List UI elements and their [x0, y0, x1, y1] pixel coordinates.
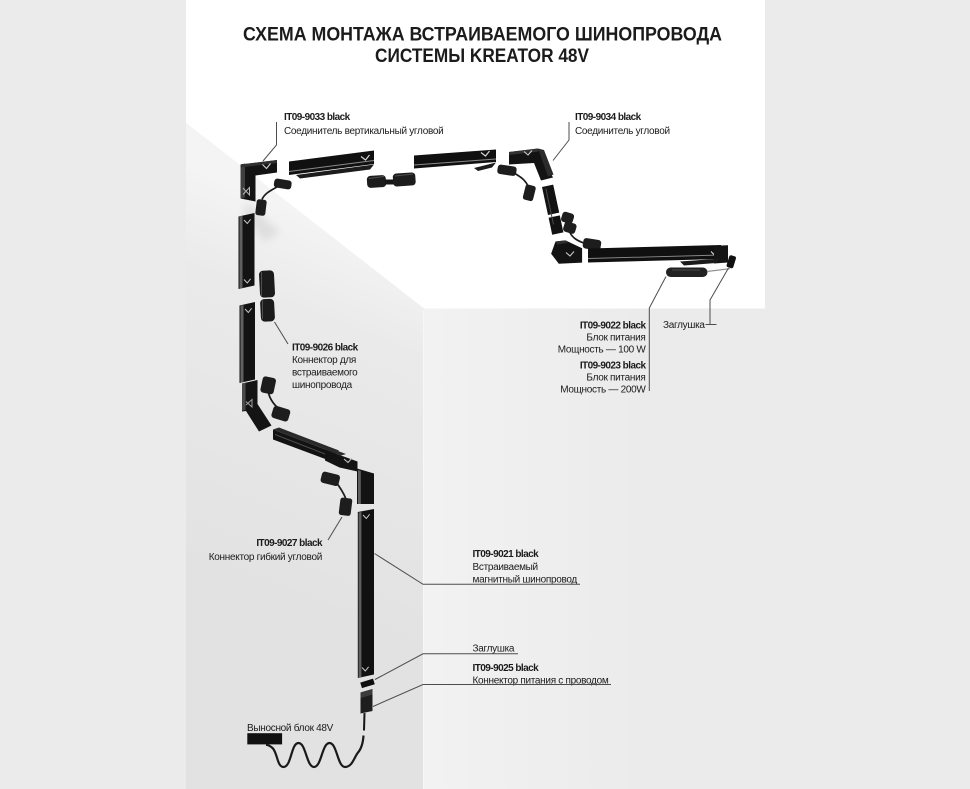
- svg-text:Встраиваемый: Встраиваемый: [473, 562, 538, 573]
- svg-text:IT09-9027 black: IT09-9027 black: [256, 538, 323, 549]
- svg-text:IT09-9022 black: IT09-9022 black: [580, 321, 647, 332]
- svg-text:IT09-9021 black: IT09-9021 black: [473, 549, 540, 560]
- svg-text:IT09-9025 black: IT09-9025 black: [473, 663, 540, 674]
- svg-text:Коннектор гибкий угловой: Коннектор гибкий угловой: [209, 551, 322, 563]
- svg-text:Коннектор для: Коннектор для: [292, 355, 356, 366]
- svg-text:Блок питания: Блок питания: [586, 373, 645, 384]
- svg-text:IT09-9023 black: IT09-9023 black: [580, 361, 647, 372]
- svg-text:Блок питания: Блок питания: [586, 333, 645, 344]
- svg-text:Заглушка: Заглушка: [473, 644, 515, 655]
- svg-text:СИСТЕМЫ KREATOR 48V: СИСТЕМЫ KREATOR 48V: [375, 45, 589, 67]
- svg-text:СХЕМА МОНТАЖА ВСТРАИВАЕМОГО ШИ: СХЕМА МОНТАЖА ВСТРАИВАЕМОГО ШИНОПРОВОДА: [243, 24, 722, 46]
- svg-text:Мощность — 100 W: Мощность — 100 W: [558, 345, 647, 356]
- svg-text:встраиваемого: встраиваемого: [292, 368, 358, 379]
- svg-text:Мощность — 200W: Мощность — 200W: [560, 385, 646, 396]
- svg-text:Заглушка: Заглушка: [663, 320, 705, 331]
- svg-text:Соединитель вертикальный углов: Соединитель вертикальный угловой: [284, 126, 443, 137]
- svg-text:Соединитель угловой: Соединитель угловой: [575, 126, 670, 137]
- svg-text:IT09-9034 black: IT09-9034 black: [575, 112, 642, 123]
- svg-text:IT09-9026 black: IT09-9026 black: [292, 343, 359, 354]
- svg-text:Выносной блок 48V: Выносной блок 48V: [247, 722, 334, 734]
- svg-text:шинопровода: шинопровода: [292, 380, 353, 391]
- svg-text:IT09-9033 black: IT09-9033 black: [284, 112, 351, 123]
